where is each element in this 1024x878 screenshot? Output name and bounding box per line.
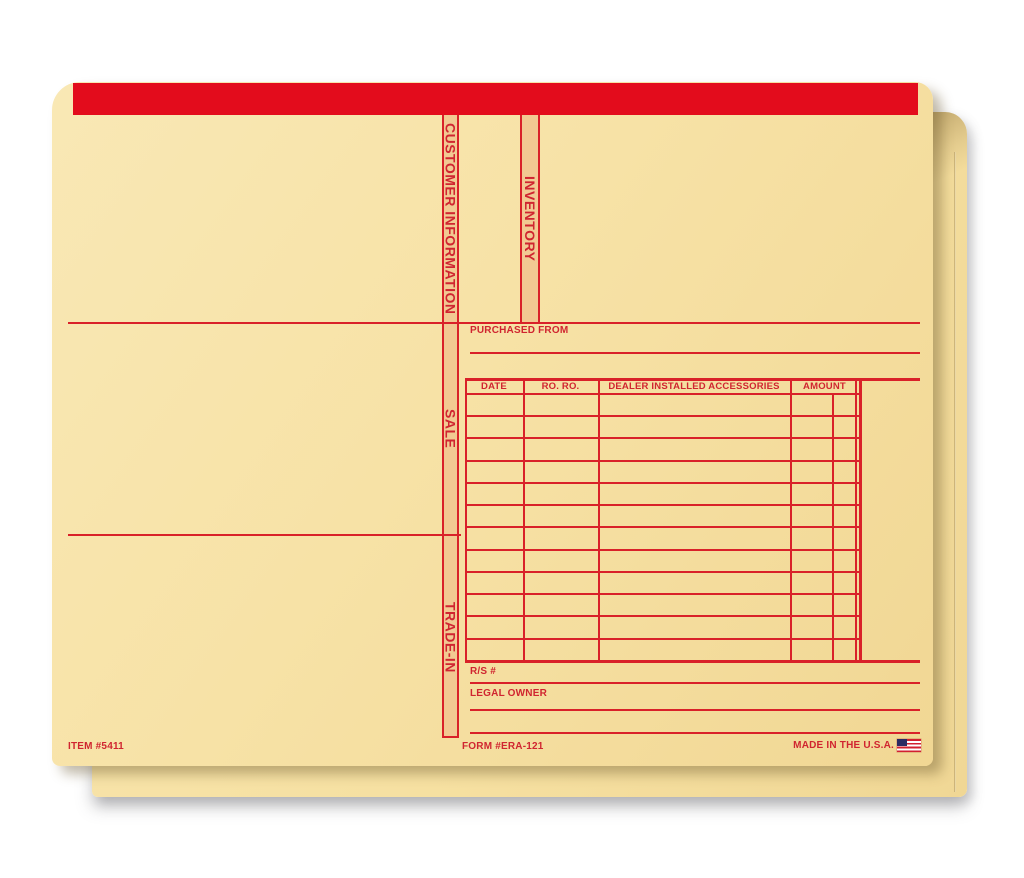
purchased-from-write-line <box>470 352 920 354</box>
table-col-divider-accessories <box>790 378 792 663</box>
table-left-border <box>465 378 467 663</box>
legal-owner-write-line-2 <box>470 732 920 734</box>
table-bottom-border <box>465 660 920 663</box>
table-col-divider-amount <box>855 378 857 663</box>
deal-jacket-front: CUSTOMER INFORMATION INVENTORY SALE TRAD… <box>52 82 933 766</box>
rs-number-label: R/S # <box>470 666 496 677</box>
legal-owner-label: LEGAL OWNER <box>470 688 547 699</box>
section-divider-top <box>68 322 920 324</box>
table-header-dealer-installed-accessories: DEALER INSTALLED ACCESSORIES <box>598 379 790 393</box>
product-photo-deal-jacket: CUSTOMER INFORMATION INVENTORY SALE TRAD… <box>0 0 1024 878</box>
tab-customer-information: CUSTOMER INFORMATION <box>440 115 461 322</box>
tab-customer-information-label: CUSTOMER INFORMATION <box>443 123 459 314</box>
back-folder-crease <box>954 152 956 792</box>
us-flag-icon <box>897 739 921 752</box>
tab-sale-label: SALE <box>443 409 459 448</box>
made-in-usa: MADE IN THE U.S.A. <box>793 739 921 752</box>
table-row-line <box>465 415 861 417</box>
tab-trade-in: TRADE-IN <box>440 536 461 738</box>
table-row-line <box>465 638 861 640</box>
table-header-date: DATE <box>465 379 523 393</box>
section-divider-sale-tradein <box>68 534 461 536</box>
item-number: ITEM #5411 <box>68 741 124 752</box>
table-row-line <box>465 593 861 595</box>
table-row-line <box>465 549 861 551</box>
table-col-divider-rono <box>598 378 600 663</box>
tab-inventory: INVENTORY <box>518 115 542 322</box>
back-folder-fold-shadow <box>928 112 967 208</box>
table-row-line <box>465 460 861 462</box>
table-row-line <box>465 437 861 439</box>
table-row-line <box>465 571 861 573</box>
red-header-stripe <box>73 83 918 115</box>
tab-sale: SALE <box>440 324 461 534</box>
table-header-underline <box>465 393 861 395</box>
table-row-line <box>465 482 861 484</box>
table-header-ro-ro: RO. RO. <box>523 379 598 393</box>
tab-inventory-label: INVENTORY <box>522 176 538 261</box>
legal-owner-write-line-1 <box>470 709 920 711</box>
table-row-line <box>465 526 861 528</box>
table-col-divider-date <box>523 378 525 663</box>
made-in-usa-label: MADE IN THE U.S.A. <box>793 740 894 751</box>
table-header-amount: AMOUNT <box>790 379 859 393</box>
table-right-border <box>859 378 862 663</box>
amount-cents-divider <box>832 393 834 663</box>
tab-trade-in-label: TRADE-IN <box>443 602 459 673</box>
purchased-from-label: PURCHASED FROM <box>470 325 568 336</box>
form-number: FORM #ERA-121 <box>462 741 544 752</box>
table-row-line <box>465 504 861 506</box>
table-row-line <box>465 615 861 617</box>
rs-number-write-line <box>470 682 920 684</box>
us-flag-canton <box>897 739 907 746</box>
